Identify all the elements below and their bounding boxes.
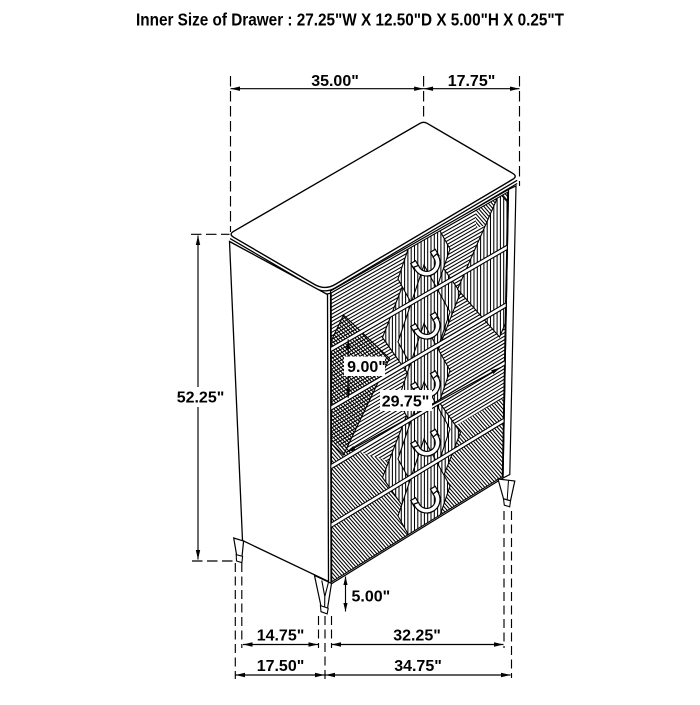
svg-text:17.50": 17.50" [257, 658, 305, 675]
svg-text:14.75": 14.75" [257, 628, 305, 645]
svg-text:Inner Size of Drawer : 27.25"W: Inner Size of Drawer : 27.25"W X 12.50"D… [136, 10, 564, 30]
svg-text:17.75": 17.75" [448, 73, 496, 90]
svg-text:32.25": 32.25" [393, 628, 441, 645]
svg-text:52.25": 52.25" [177, 390, 225, 407]
svg-text:5.00": 5.00" [352, 589, 391, 606]
svg-text:34.75": 34.75" [394, 658, 442, 675]
svg-text:29.75": 29.75" [382, 394, 430, 411]
svg-text:9.00": 9.00" [347, 359, 386, 376]
svg-text:35.00": 35.00" [311, 73, 359, 90]
